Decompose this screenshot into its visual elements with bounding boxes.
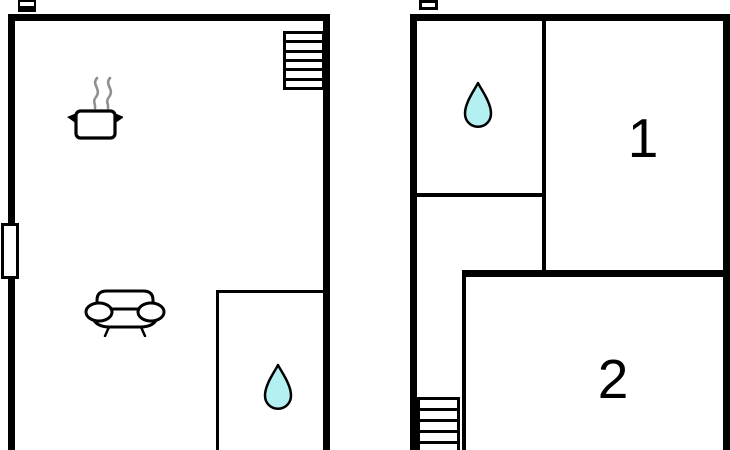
bathroom-bottom-wall xyxy=(417,193,546,197)
room1-left-wall xyxy=(542,21,546,276)
room-2-label: 2 xyxy=(568,352,658,407)
room2-top-wall xyxy=(462,270,730,277)
stair-tread xyxy=(420,441,457,444)
right-plan-right-wall xyxy=(723,14,730,450)
stair-tread xyxy=(420,419,457,422)
right-floor-plan: 1 2 xyxy=(0,0,730,450)
stair-tread xyxy=(420,408,457,411)
stair-tread xyxy=(420,430,457,433)
floor-plan-canvas: 1 2 xyxy=(0,0,730,450)
room-1-label: 1 xyxy=(598,111,688,166)
staircase-icon xyxy=(417,397,460,450)
right-plan-left-wall xyxy=(410,14,417,450)
window-marker-icon xyxy=(419,0,438,10)
right-plan-top-wall xyxy=(410,14,730,21)
water-drop-shape xyxy=(465,83,491,127)
water-drop-icon xyxy=(463,81,493,129)
room2-left-wall xyxy=(462,270,466,450)
